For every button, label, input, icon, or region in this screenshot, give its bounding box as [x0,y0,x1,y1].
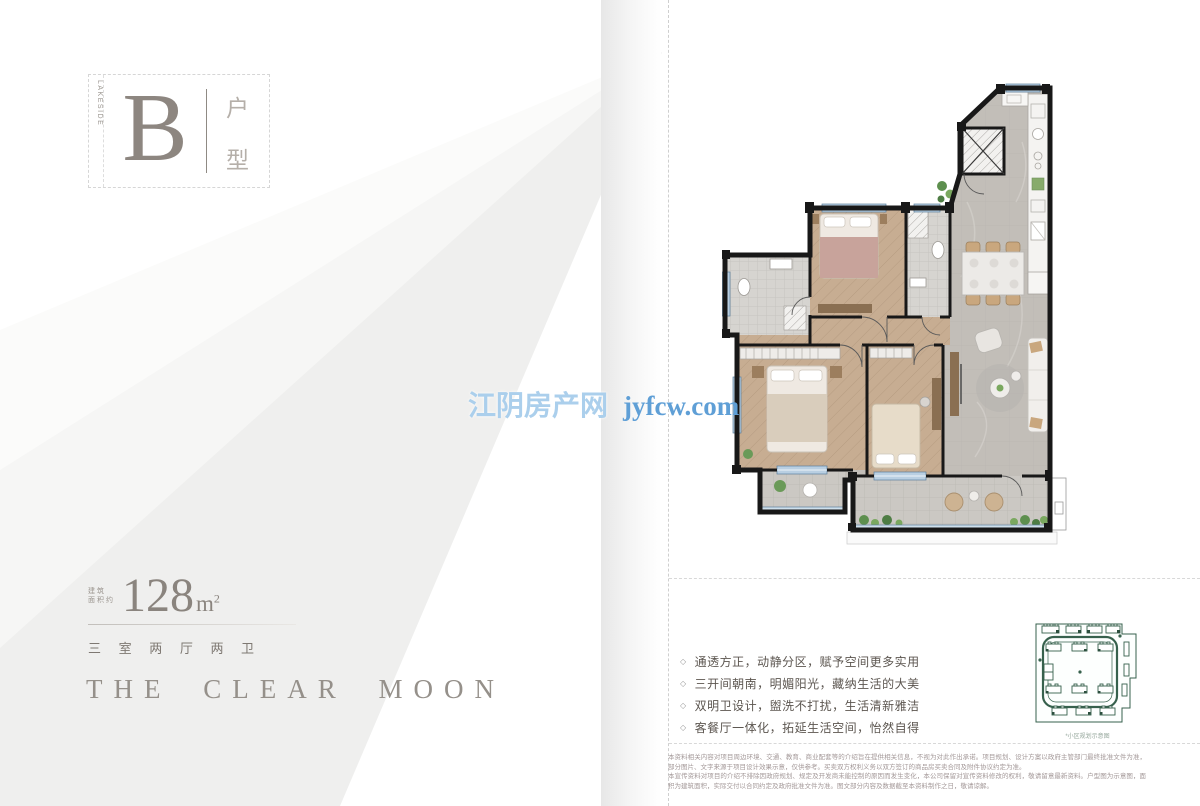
diamond-bullet-icon: ◇ [680,723,687,732]
feature-item: ◇双明卫设计，盥洗不打扰，生活清新雅洁 [680,694,920,716]
feature-item: ◇通透方正，动静分区，赋予空间更多实用 [680,650,920,672]
area-unit-sup: 2 [214,591,220,605]
feature-text: 通透方正，动静分区，赋予空间更多实用 [695,653,920,670]
shower [784,306,806,330]
sink [910,278,926,287]
desk-chair [920,397,930,407]
slogan-text: THE CLEAR MOON [86,674,505,705]
unit-type-badge: LAKESIDE B 户 型 [88,74,270,188]
diamond-bullet-icon: ◇ [680,657,687,666]
unit-letter: B [104,69,206,187]
area-value: 128 [122,573,194,619]
ac-platform-outline [847,532,1057,544]
disclaimer-text: 本资料相关内容对项目周边环境、交通、教育、商业配套等的介绍旨在提供相关信息，不视… [668,753,1146,791]
site-plan-caption: *小区规划示意图 [1030,731,1145,740]
watermark-site-url: jyfcw.com [623,391,739,422]
series-vertical-label: LAKESIDE [89,75,104,187]
toilet [738,279,750,296]
area-block: 建筑 面积约 128 m2 三 室 两 厅 两 卫 [88,573,296,657]
plant [774,480,786,492]
area-prefix-label: 建筑 面积约 [88,587,115,605]
dresser [818,304,872,313]
area-unit-base: m [196,591,214,616]
rattan-chair [945,493,963,511]
diamond-bullet-icon: ◇ [680,679,687,688]
site-plan-map [1030,620,1145,728]
unit-type-char: 户 [206,89,269,123]
disclaimer-line: 本资料相关内容对项目周边环境、交通、教育、商业配套等的介绍旨在提供相关信息，不视… [668,753,1146,772]
feature-item: ◇三开间朝南，明媚阳光，藏纳生活的大美 [680,672,920,694]
wardrobe [740,348,840,359]
diamond-bullet-icon: ◇ [680,701,687,710]
underline [88,624,296,625]
feature-text: 三开间朝南，明媚阳光，藏纳生活的大美 [695,675,920,692]
toilet [932,242,944,259]
dashed-separator [669,578,1200,579]
side-table [969,491,979,501]
floor-plan-drawing [722,82,1110,550]
feature-text: 双明卫设计，盥洗不打扰，生活清新雅洁 [695,697,920,714]
feature-text: 客餐厅一体化，拓延生活空间，怡然自得 [695,719,920,736]
feature-item: ◇客餐厅一体化，拓延生活空间，怡然自得 [680,716,920,738]
area-unit: m2 [196,591,220,617]
elevator-shaft [962,128,1004,174]
unit-type-char: 型 [206,141,269,175]
area-prefix-line1: 建筑 [88,587,115,596]
feature-list: ◇通透方正，动静分区，赋予空间更多实用 ◇三开间朝南，明媚阳光，藏纳生活的大美 … [680,650,920,738]
plant [743,449,753,459]
disclaimer-line: 本宣传资料对项目的介绍不排除因政府规划、规定及开发商未能控制的原因而发生变化，本… [668,772,1146,791]
watermark-site-name: 江阴房产网 [468,384,608,424]
nightstand [830,366,842,378]
dashed-separator [669,743,1200,744]
watermark: 江阴房产网 jyfcw.com [468,384,739,424]
shower [908,210,928,238]
dining-table [962,242,1024,305]
desk [932,378,941,430]
room-layout-text: 三 室 两 厅 两 卫 [88,638,296,657]
nightstand [752,366,764,378]
area-prefix-line2: 面积约 [88,596,115,605]
tv-console [950,352,959,416]
brochure-page: LAKESIDE B 户 型 建筑 面积约 128 m2 三 室 两 厅 两 卫… [0,0,1200,806]
table [803,483,817,497]
sink [770,259,792,269]
rattan-chair [985,493,1003,511]
terrace-floor [760,470,845,512]
ac-platform [1052,478,1066,530]
